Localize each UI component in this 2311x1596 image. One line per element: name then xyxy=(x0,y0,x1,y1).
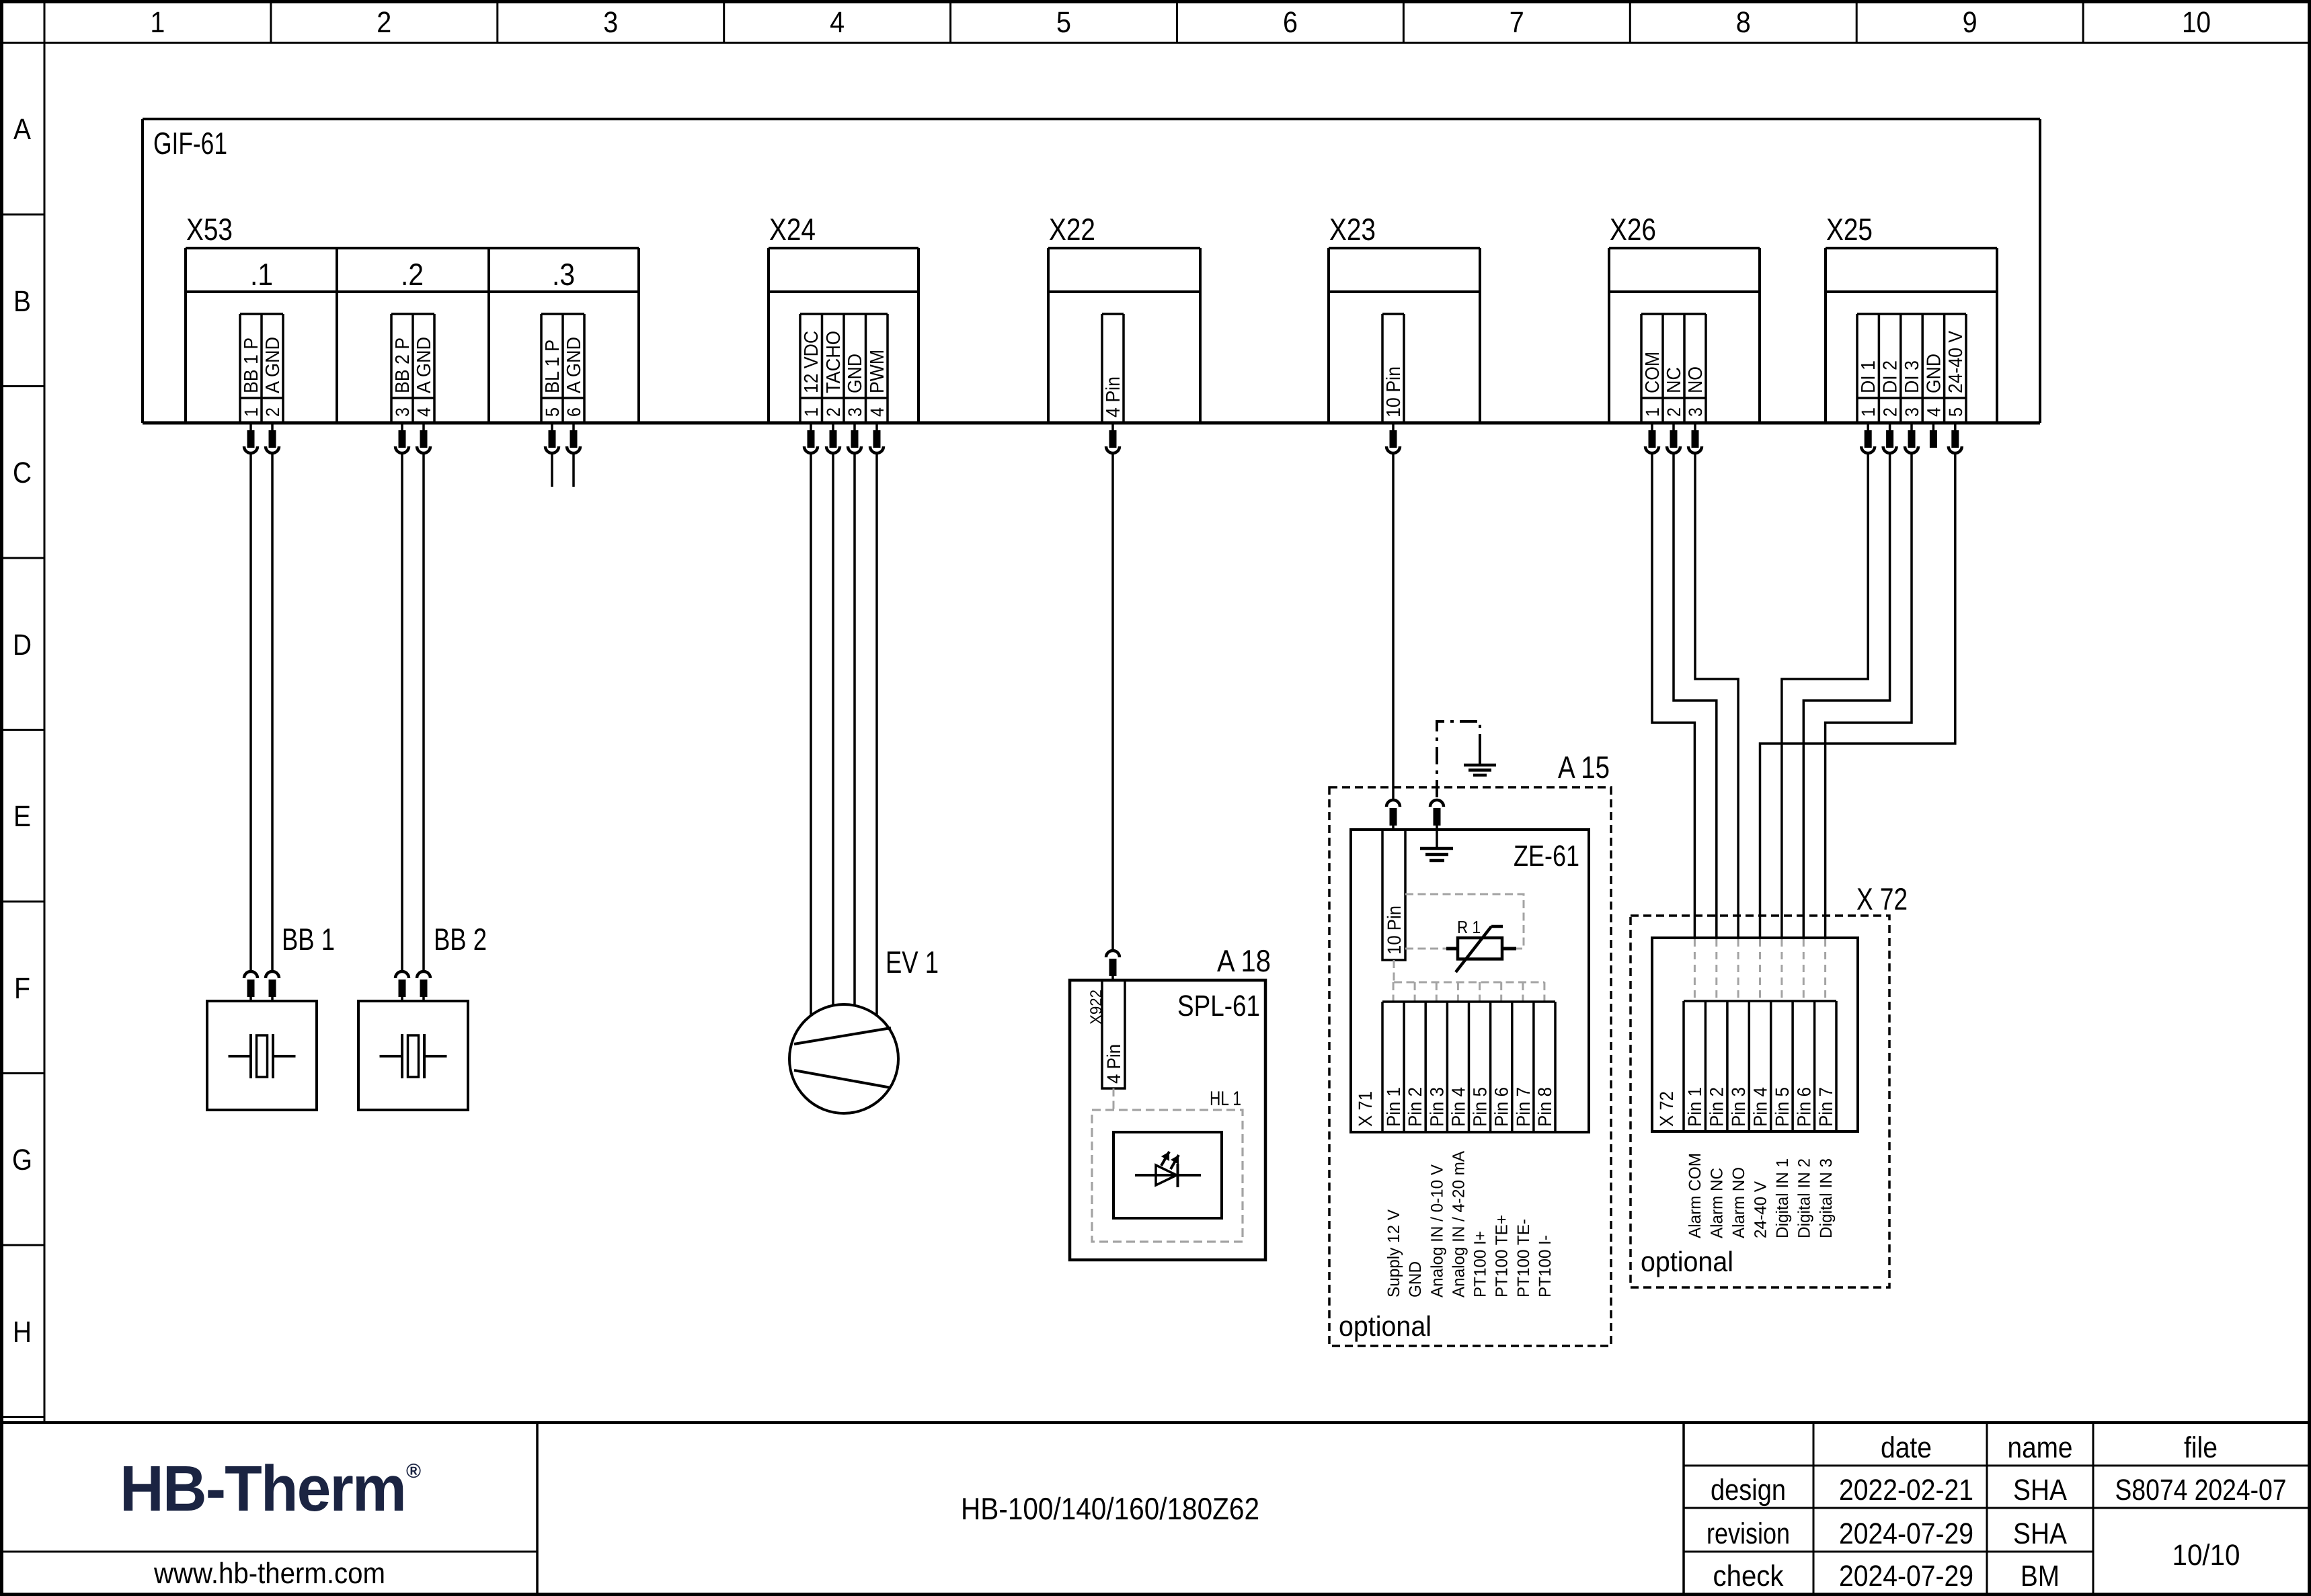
svg-text:file: file xyxy=(2184,1431,2218,1464)
svg-text:BB 2 P: BB 2 P xyxy=(392,337,414,393)
svg-text:GND: GND xyxy=(1406,1261,1425,1298)
svg-text:Analog IN / 0-10 V: Analog IN / 0-10 V xyxy=(1427,1164,1446,1298)
svg-text:1: 1 xyxy=(801,407,822,417)
svg-text:BB 1: BB 1 xyxy=(282,922,335,957)
svg-text:A: A xyxy=(13,113,32,146)
svg-text:.2: .2 xyxy=(401,257,424,292)
svg-text:Pin 5: Pin 5 xyxy=(1772,1087,1793,1127)
svg-text:X 72: X 72 xyxy=(1656,1091,1677,1127)
svg-text:check: check xyxy=(1713,1560,1785,1593)
svg-text:HB-100/140/160/180Z62: HB-100/140/160/180Z62 xyxy=(961,1491,1259,1526)
svg-text:A GND: A GND xyxy=(414,337,435,393)
svg-text:NO: NO xyxy=(1685,366,1707,393)
svg-text:www.hb-therm.com: www.hb-therm.com xyxy=(153,1557,385,1590)
svg-text:10 Pin: 10 Pin xyxy=(1383,366,1405,417)
svg-text:X24: X24 xyxy=(769,212,816,247)
svg-text:1: 1 xyxy=(150,6,165,39)
svg-text:24-40 V: 24-40 V xyxy=(1752,1181,1770,1238)
svg-text:A 15: A 15 xyxy=(1558,750,1610,785)
svg-text:8: 8 xyxy=(1736,6,1751,39)
svg-text:Pin 4: Pin 4 xyxy=(1750,1087,1771,1127)
svg-text:Supply 12 V: Supply 12 V xyxy=(1384,1209,1403,1298)
svg-text:F: F xyxy=(14,972,30,1005)
svg-text:DI 3: DI 3 xyxy=(1902,360,1923,393)
svg-text:Alarm NO: Alarm NO xyxy=(1729,1167,1748,1238)
svg-text:COM: COM xyxy=(1642,352,1663,393)
svg-text:DI 1: DI 1 xyxy=(1858,360,1879,393)
svg-text:4: 4 xyxy=(830,6,845,39)
svg-text:G: G xyxy=(12,1144,32,1176)
svg-text:Pin 7: Pin 7 xyxy=(1513,1087,1534,1127)
svg-text:®: ® xyxy=(406,1460,421,1482)
svg-text:Pin 7: Pin 7 xyxy=(1815,1087,1836,1127)
svg-text:name: name xyxy=(2008,1431,2073,1464)
svg-text:5: 5 xyxy=(1056,6,1071,39)
svg-text:1: 1 xyxy=(1858,407,1879,417)
svg-text:3: 3 xyxy=(1902,407,1922,417)
svg-text:X25: X25 xyxy=(1826,212,1873,247)
svg-text:5: 5 xyxy=(1945,407,1966,417)
svg-text:Pin 3: Pin 3 xyxy=(1728,1087,1749,1127)
svg-text:Digital IN 3: Digital IN 3 xyxy=(1817,1158,1836,1238)
svg-text:PT100 TE-: PT100 TE- xyxy=(1514,1219,1533,1298)
svg-text:9: 9 xyxy=(1963,6,1977,39)
svg-text:12 VDC: 12 VDC xyxy=(801,331,822,393)
svg-text:A GND: A GND xyxy=(563,337,585,393)
svg-text:10 Pin: 10 Pin xyxy=(1384,906,1405,955)
svg-text:X23: X23 xyxy=(1329,212,1376,247)
svg-text:B: B xyxy=(13,285,31,318)
svg-text:2024-07-29: 2024-07-29 xyxy=(1839,1517,1973,1550)
svg-text:GIF-61: GIF-61 xyxy=(153,126,227,161)
svg-text:X922: X922 xyxy=(1087,990,1105,1025)
svg-text:HL 1: HL 1 xyxy=(1210,1088,1241,1110)
svg-text:SHA: SHA xyxy=(2013,1474,2068,1507)
svg-text:EV 1: EV 1 xyxy=(886,945,939,980)
svg-text:5: 5 xyxy=(542,407,563,417)
svg-text:BB 2: BB 2 xyxy=(434,922,487,957)
svg-text:S8074 2024-07: S8074 2024-07 xyxy=(2115,1474,2287,1507)
svg-text:Pin 1: Pin 1 xyxy=(1684,1087,1705,1127)
svg-text:Pin 6: Pin 6 xyxy=(1491,1087,1512,1127)
svg-text:2022-02-21: 2022-02-21 xyxy=(1839,1474,1973,1507)
svg-text:A GND: A GND xyxy=(262,337,284,393)
svg-text:A 18: A 18 xyxy=(1217,943,1271,978)
svg-text:3: 3 xyxy=(392,407,413,417)
svg-text:BB 1 P: BB 1 P xyxy=(241,337,262,393)
svg-text:optional: optional xyxy=(1339,1310,1432,1342)
svg-text:Pin 2: Pin 2 xyxy=(1707,1087,1727,1127)
svg-text:BL 1 P: BL 1 P xyxy=(542,340,563,393)
svg-text:24-40 V: 24-40 V xyxy=(1945,330,1967,393)
svg-text:3: 3 xyxy=(603,6,618,39)
svg-text:3: 3 xyxy=(1685,407,1706,417)
svg-text:optional: optional xyxy=(1641,1246,1733,1277)
svg-text:Alarm NC: Alarm NC xyxy=(1708,1168,1727,1238)
svg-text:GND: GND xyxy=(1923,354,1945,393)
svg-text:4: 4 xyxy=(414,407,434,417)
svg-text:Alarm COM: Alarm COM xyxy=(1686,1153,1705,1238)
svg-text:X26: X26 xyxy=(1610,212,1656,247)
svg-text:X 72: X 72 xyxy=(1856,881,1908,916)
svg-text:2: 2 xyxy=(1880,407,1901,417)
svg-text:X22: X22 xyxy=(1049,212,1095,247)
svg-text:7: 7 xyxy=(1510,6,1524,39)
svg-text:2: 2 xyxy=(377,6,391,39)
svg-text:2: 2 xyxy=(262,407,283,417)
svg-text:PT100 I-: PT100 I- xyxy=(1536,1235,1555,1298)
svg-text:Digital IN 2: Digital IN 2 xyxy=(1795,1158,1813,1238)
svg-text:Pin 3: Pin 3 xyxy=(1426,1087,1447,1127)
svg-text:date: date xyxy=(1881,1431,1932,1464)
svg-text:4 Pin: 4 Pin xyxy=(1103,1044,1124,1084)
svg-text:3: 3 xyxy=(845,407,865,417)
svg-text:DI 2: DI 2 xyxy=(1880,360,1902,393)
svg-text:6: 6 xyxy=(1283,6,1298,39)
svg-text:Pin 8: Pin 8 xyxy=(1534,1087,1555,1127)
svg-text:10/10: 10/10 xyxy=(2172,1539,2240,1572)
svg-text:BM: BM xyxy=(2021,1560,2060,1593)
svg-text:Pin 5: Pin 5 xyxy=(1470,1087,1491,1127)
svg-text:HB-Therm: HB-Therm xyxy=(120,1453,405,1525)
svg-text:6: 6 xyxy=(563,407,584,417)
svg-text:R 1: R 1 xyxy=(1457,917,1481,937)
svg-text:TACHO: TACHO xyxy=(823,331,845,393)
svg-text:NC: NC xyxy=(1663,367,1685,393)
svg-text:.3: .3 xyxy=(552,257,575,292)
svg-text:2: 2 xyxy=(1663,407,1684,417)
svg-text:1: 1 xyxy=(1642,407,1663,417)
svg-text:revision: revision xyxy=(1707,1517,1790,1550)
svg-text:ZE-61: ZE-61 xyxy=(1514,840,1579,873)
svg-text:GND: GND xyxy=(845,354,866,393)
svg-text:D: D xyxy=(13,629,32,662)
svg-text:1: 1 xyxy=(241,407,262,417)
svg-text:SHA: SHA xyxy=(2013,1517,2068,1550)
svg-text:H: H xyxy=(13,1316,32,1349)
svg-text:Pin 1: Pin 1 xyxy=(1383,1087,1404,1127)
svg-text:Pin 4: Pin 4 xyxy=(1448,1087,1468,1127)
svg-text:10: 10 xyxy=(2182,6,2211,39)
svg-text:C: C xyxy=(13,456,32,489)
svg-text:SPL-61: SPL-61 xyxy=(1177,990,1260,1023)
svg-text:design: design xyxy=(1711,1474,1786,1507)
svg-text:PWM: PWM xyxy=(867,350,888,393)
svg-text:4: 4 xyxy=(1923,407,1944,417)
svg-text:Pin 6: Pin 6 xyxy=(1793,1087,1814,1127)
svg-text:.1: .1 xyxy=(250,257,273,292)
svg-text:Pin 2: Pin 2 xyxy=(1405,1087,1425,1127)
svg-text:4: 4 xyxy=(867,407,888,417)
svg-text:E: E xyxy=(13,800,31,833)
svg-text:Digital IN 1: Digital IN 1 xyxy=(1773,1158,1792,1238)
svg-text:4 Pin: 4 Pin xyxy=(1103,376,1124,417)
svg-text:X53: X53 xyxy=(186,212,233,247)
svg-text:2024-07-29: 2024-07-29 xyxy=(1839,1560,1973,1593)
svg-text:X 71: X 71 xyxy=(1355,1091,1376,1127)
svg-text:PT100 I+: PT100 I+ xyxy=(1471,1231,1490,1298)
svg-text:Analog IN / 4-20 mA: Analog IN / 4-20 mA xyxy=(1449,1151,1468,1298)
svg-text:PT100 TE+: PT100 TE+ xyxy=(1493,1215,1512,1298)
svg-text:2: 2 xyxy=(823,407,844,417)
